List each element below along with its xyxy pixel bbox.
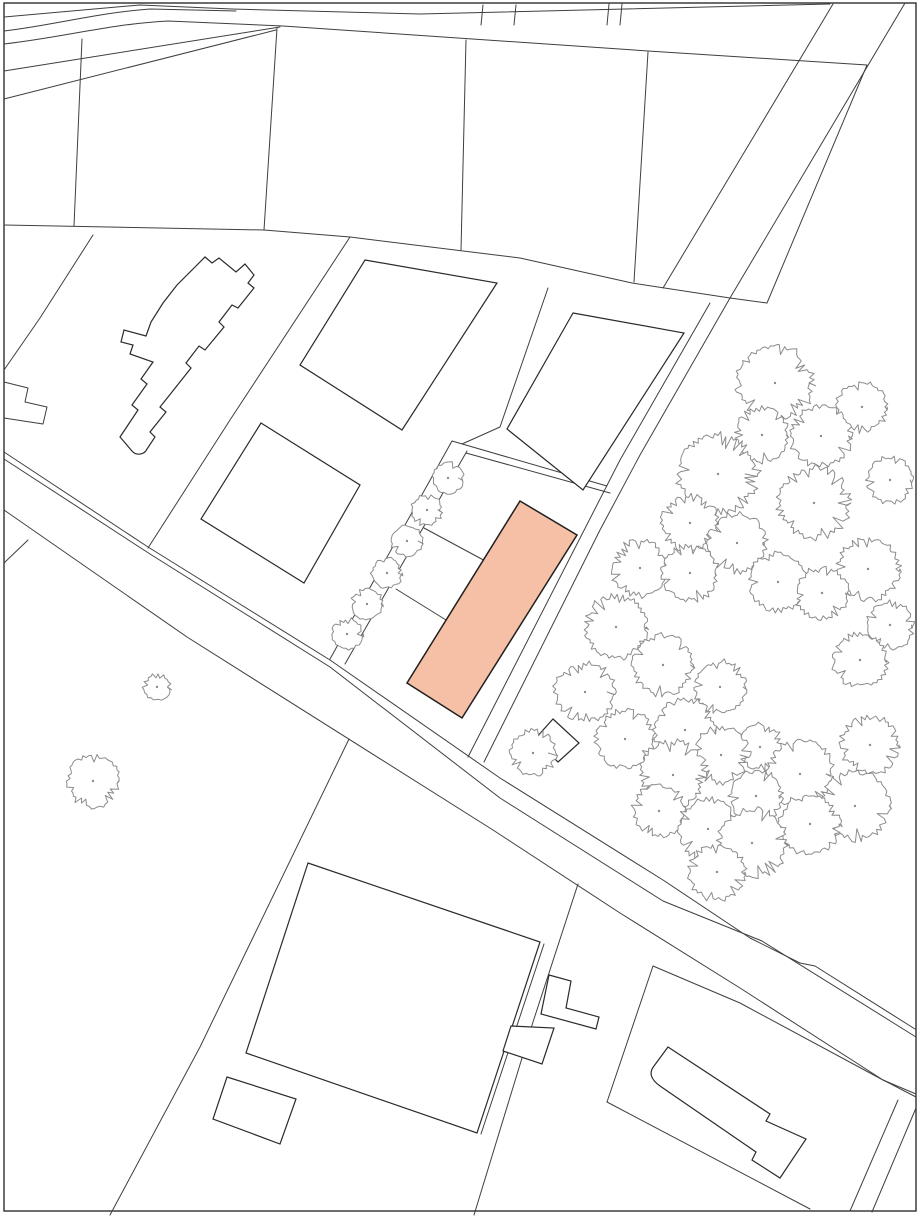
tree-lone-trunk-dot bbox=[156, 686, 158, 688]
tree-cluster-trunk-dot bbox=[821, 592, 823, 594]
tree-cluster-trunk-dot bbox=[717, 473, 719, 475]
tree-cluster-trunk-dot bbox=[854, 805, 856, 807]
tree-cluster-trunk-dot bbox=[777, 581, 779, 583]
tree-row-trunk-dot bbox=[386, 572, 388, 574]
tree-cluster-trunk-dot bbox=[869, 744, 871, 746]
site-plan-page bbox=[0, 0, 920, 1219]
tree-cluster-trunk-dot bbox=[889, 624, 891, 626]
tree-row-trunk-dot bbox=[406, 540, 408, 542]
tree-cluster-trunk-dot bbox=[707, 828, 709, 830]
tree-cluster-trunk-dot bbox=[615, 626, 617, 628]
tree-cluster-trunk-dot bbox=[774, 382, 776, 384]
tree-cluster-trunk-dot bbox=[658, 810, 660, 812]
site-plan-canvas bbox=[0, 0, 920, 1219]
tree-cluster-trunk-dot bbox=[755, 795, 757, 797]
tree-row-trunk-dot bbox=[346, 633, 348, 635]
tree-cluster-trunk-dot bbox=[751, 842, 753, 844]
tree-lone-trunk-dot bbox=[92, 780, 94, 782]
tree-row-trunk-dot bbox=[426, 509, 428, 511]
tree-cluster-trunk-dot bbox=[720, 754, 722, 756]
tree-cluster-trunk-dot bbox=[719, 686, 721, 688]
tree-cluster-trunk-dot bbox=[662, 664, 664, 666]
tree-cluster-trunk-dot bbox=[684, 729, 686, 731]
tree-cluster-trunk-dot bbox=[672, 774, 674, 776]
tree-cluster-trunk-dot bbox=[716, 871, 718, 873]
tree-cluster-trunk-dot bbox=[859, 659, 861, 661]
tree-cluster-trunk-dot bbox=[639, 567, 641, 569]
tree-cluster-trunk-dot bbox=[624, 738, 626, 740]
tree-cluster-trunk-dot bbox=[689, 522, 691, 524]
tree-cluster-trunk-dot bbox=[689, 572, 691, 574]
tree-cluster-trunk-dot bbox=[813, 502, 815, 504]
tree-cluster-trunk-dot bbox=[736, 542, 738, 544]
tree-cluster-trunk-dot bbox=[761, 434, 763, 436]
tree-cluster-trunk-dot bbox=[532, 752, 534, 754]
tree-cluster-trunk-dot bbox=[867, 568, 869, 570]
tree-cluster-trunk-dot bbox=[584, 691, 586, 693]
tree-cluster-trunk-dot bbox=[820, 435, 822, 437]
tree-row-trunk-dot bbox=[366, 603, 368, 605]
tree-cluster-trunk-dot bbox=[799, 773, 801, 775]
tree-cluster-trunk-dot bbox=[861, 406, 863, 408]
tree-row-trunk-dot bbox=[447, 477, 449, 479]
tree-cluster-trunk-dot bbox=[889, 479, 891, 481]
tree-cluster-trunk-dot bbox=[809, 823, 811, 825]
tree-cluster-trunk-dot bbox=[759, 746, 761, 748]
